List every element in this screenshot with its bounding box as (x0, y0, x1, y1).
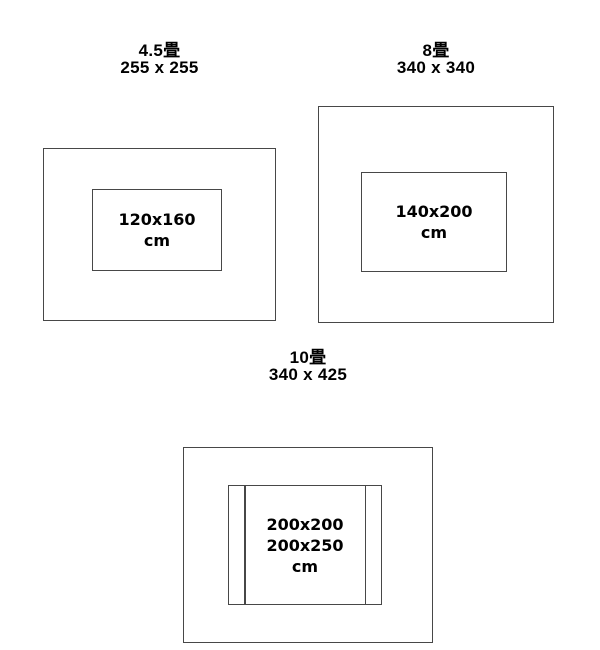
rug-outline-120x160: 120x160 cm (92, 189, 222, 271)
rug-outline-200x200-200x250: 200x200 200x250 cm (228, 485, 382, 605)
room-header-10-tatami: 10畳 340 x 425 (183, 350, 433, 383)
room-size-label: 255 x 255 (43, 60, 276, 76)
rug-size-label: 120x160 cm (118, 209, 195, 251)
rug-size-label: 140x200 cm (395, 201, 472, 243)
room-size-label: 340 x 425 (183, 367, 433, 383)
rug-side-stripe-left (244, 486, 246, 604)
room-tatami-label: 4.5畳 (43, 43, 276, 59)
room-outline-10-tatami: 200x200 200x250 cm (183, 447, 433, 643)
room-outline-8-tatami: 140x200 cm (318, 106, 554, 323)
rug-size-unit: cm (395, 222, 472, 243)
rug-size-value: 140x200 (395, 201, 472, 222)
rug-size-label: 200x200 200x250 cm (266, 514, 343, 577)
rug-size-value: 200x250 (266, 535, 343, 556)
room-header-8-tatami: 8畳 340 x 340 (318, 43, 554, 76)
rug-size-value: 120x160 (118, 209, 195, 230)
room-size-label: 340 x 340 (318, 60, 554, 76)
rug-size-unit: cm (266, 556, 343, 577)
rug-outline-140x200: 140x200 cm (361, 172, 507, 272)
room-tatami-label: 10畳 (183, 350, 433, 366)
rug-side-stripe-right (365, 486, 367, 604)
rug-size-unit: cm (118, 230, 195, 251)
room-outline-4-5-tatami: 120x160 cm (43, 148, 276, 321)
rug-size-value: 200x200 (266, 514, 343, 535)
rug-size-guide-diagram: 4.5畳 255 x 255 120x160 cm 8畳 340 x 340 1… (0, 0, 600, 650)
room-header-4-5-tatami: 4.5畳 255 x 255 (43, 43, 276, 76)
room-tatami-label: 8畳 (318, 43, 554, 59)
